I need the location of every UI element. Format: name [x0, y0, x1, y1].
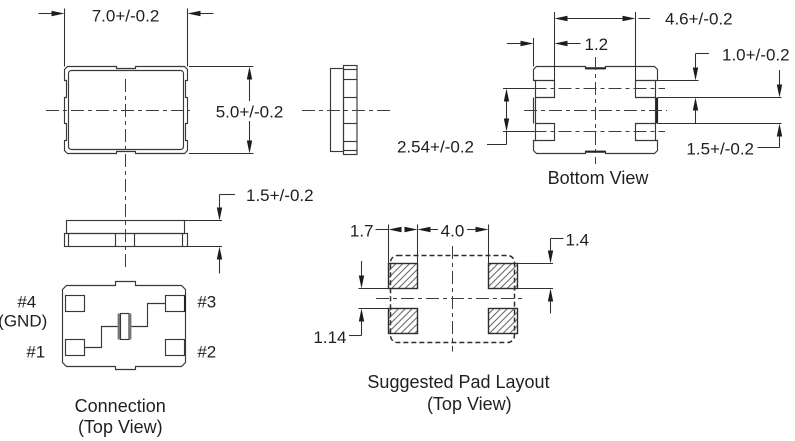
svg-text:Suggested Pad Layout: Suggested Pad Layout [367, 372, 549, 392]
svg-text:#2: #2 [197, 342, 216, 361]
svg-text:1.5+/-0.2: 1.5+/-0.2 [246, 186, 314, 205]
svg-text:5.0+/-0.2: 5.0+/-0.2 [216, 103, 284, 122]
svg-text:(Top View): (Top View) [427, 394, 512, 414]
svg-text:1.0+/-0.2: 1.0+/-0.2 [722, 46, 790, 65]
svg-text:2.54+/-0.2: 2.54+/-0.2 [397, 138, 474, 157]
svg-text:#3: #3 [197, 293, 216, 312]
svg-text:(Top View): (Top View) [78, 417, 163, 437]
svg-text:#4: #4 [17, 293, 36, 312]
svg-text:1.5+/-0.2: 1.5+/-0.2 [686, 140, 754, 159]
svg-text:4.6+/-0.2: 4.6+/-0.2 [665, 10, 733, 29]
svg-text:(GND): (GND) [0, 312, 47, 331]
svg-text:1.4: 1.4 [566, 231, 590, 250]
svg-text:1.7: 1.7 [350, 222, 374, 241]
svg-text:Bottom View: Bottom View [548, 168, 650, 188]
svg-text:#1: #1 [26, 342, 45, 361]
svg-text:1.14: 1.14 [313, 328, 346, 347]
svg-text:4.0: 4.0 [441, 222, 465, 241]
svg-text:1.2: 1.2 [585, 35, 609, 54]
svg-text:Connection: Connection [75, 396, 166, 416]
svg-text:7.0+/-0.2: 7.0+/-0.2 [92, 7, 160, 26]
